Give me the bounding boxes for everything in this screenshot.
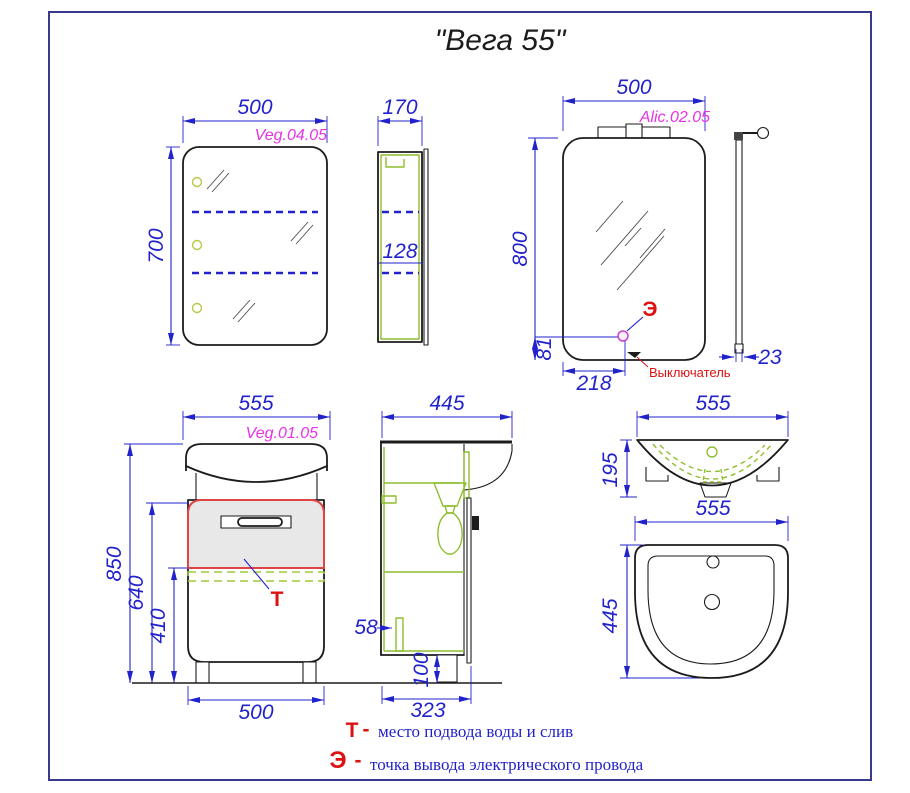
dim-label: 195 <box>599 452 622 487</box>
dim-label: 555 <box>695 392 730 415</box>
dim-sink-height: 195 <box>599 440 637 497</box>
legend-item-water: Т - место подвода воды и слив <box>346 718 574 742</box>
dim-label: 445 <box>599 598 622 633</box>
view-cabinet-front: 500 Veg.04.05 700 <box>145 96 327 345</box>
dim-label: 700 <box>145 228 168 263</box>
dim-label: 218 <box>575 372 611 395</box>
dim-cabinet-height: 700 <box>145 147 180 345</box>
basin-profile <box>464 444 512 490</box>
zone-symbol: Т <box>271 588 284 611</box>
dim-label: 170 <box>382 96 417 119</box>
product-code: Veg.01.05 <box>246 425 318 442</box>
carcass-green <box>382 447 469 651</box>
view-sink-top: 555 445 <box>599 497 788 678</box>
cabinet-front-body <box>183 147 327 345</box>
sink-on-vanity <box>186 444 327 500</box>
dim-label: 555 <box>695 497 730 520</box>
dim-drawer-bottom: 410 <box>147 568 188 683</box>
vanity-side-body <box>380 442 512 682</box>
overflow-hole <box>707 447 717 457</box>
sink-front-body <box>637 440 788 497</box>
dim-plinth-height: 100 <box>410 652 437 687</box>
dim-label: 500 <box>238 701 273 724</box>
dim-side-depth: 170 <box>378 96 422 146</box>
dim-vanity-height: 850 <box>103 444 183 683</box>
legend-separator: - <box>363 718 370 741</box>
dim-mirror-height: 800 <box>509 138 558 360</box>
dim-label: 500 <box>616 76 651 99</box>
legend: Т - место подвода воды и слив Э - точка … <box>329 718 643 774</box>
dim-drawer-top: 640 <box>125 503 188 683</box>
legend-label: точка вывода электрического провода <box>370 755 644 774</box>
dim-label: 128 <box>382 240 417 263</box>
dim-label: 323 <box>410 699 445 722</box>
legend-label: место подвода воды и слив <box>378 722 573 741</box>
dim-sink-width: 555 <box>637 392 788 437</box>
product-code: Veg.04.05 <box>255 127 327 144</box>
legend-symbol: Э <box>329 747 346 774</box>
legend-item-electric: Э - точка вывода электрического провода <box>329 747 643 774</box>
legend-separator: - <box>355 749 362 772</box>
dim-label: 23 <box>757 346 782 369</box>
dim-sinktop-width: 555 <box>635 497 788 541</box>
dim-label: 58 <box>354 616 378 639</box>
lamp-bulb <box>758 128 769 139</box>
dim-shelf-gap: 128 <box>379 240 423 263</box>
vanity-front-body <box>188 500 324 683</box>
drawing-sheet: "Вега 55" 500 Veg.04.05 700 <box>0 0 910 793</box>
legend-symbol: Т <box>346 719 359 742</box>
dim-label: 100 <box>410 652 433 687</box>
mirror-body <box>563 138 705 360</box>
view-cabinet-side: 170 128 <box>378 96 428 345</box>
dim-vanity-bottom-width: 500 <box>188 686 324 724</box>
dim-label: 445 <box>429 392 464 415</box>
siphon <box>434 483 466 554</box>
dim-label: 500 <box>237 96 272 119</box>
view-sink-front: 555 195 <box>599 392 788 497</box>
product-code: Alic.02.05 <box>639 109 710 126</box>
leg <box>196 662 209 683</box>
socket-symbol: Э <box>643 298 658 321</box>
technical-drawing: "Вега 55" 500 Veg.04.05 700 <box>0 0 910 793</box>
sink-top-body <box>635 545 788 678</box>
dim-shelf-height: 58 <box>354 616 392 639</box>
dim-label: 850 <box>103 546 126 581</box>
view-mirror-front: 500 Alic.02.05 800 81 <box>509 76 731 395</box>
door-edge <box>424 149 428 345</box>
view-vanity-front: 555 Veg.01.05 850 640 <box>103 392 330 724</box>
leg <box>303 662 316 683</box>
door-panel <box>467 498 471 663</box>
dim-label: 640 <box>125 575 148 610</box>
switch-label: Выключатель <box>649 365 731 380</box>
dim-label: 410 <box>147 608 170 643</box>
dim-vanity-depth: 445 <box>382 392 512 438</box>
dim-label: 555 <box>238 392 273 415</box>
lamp-bracket <box>734 132 743 140</box>
dim-label: 800 <box>509 231 532 266</box>
faucet-hole <box>707 556 719 568</box>
water-zone <box>188 500 324 568</box>
socket-point <box>618 331 628 341</box>
plinth <box>437 655 457 682</box>
dim-label: 81 <box>533 337 556 360</box>
mirror-side-body <box>736 140 742 352</box>
view-vanity-side: 445 <box>354 392 512 722</box>
door-handle <box>472 516 479 530</box>
page-title: "Вега 55" <box>435 24 567 57</box>
view-mirror-side: 23 <box>719 128 782 370</box>
